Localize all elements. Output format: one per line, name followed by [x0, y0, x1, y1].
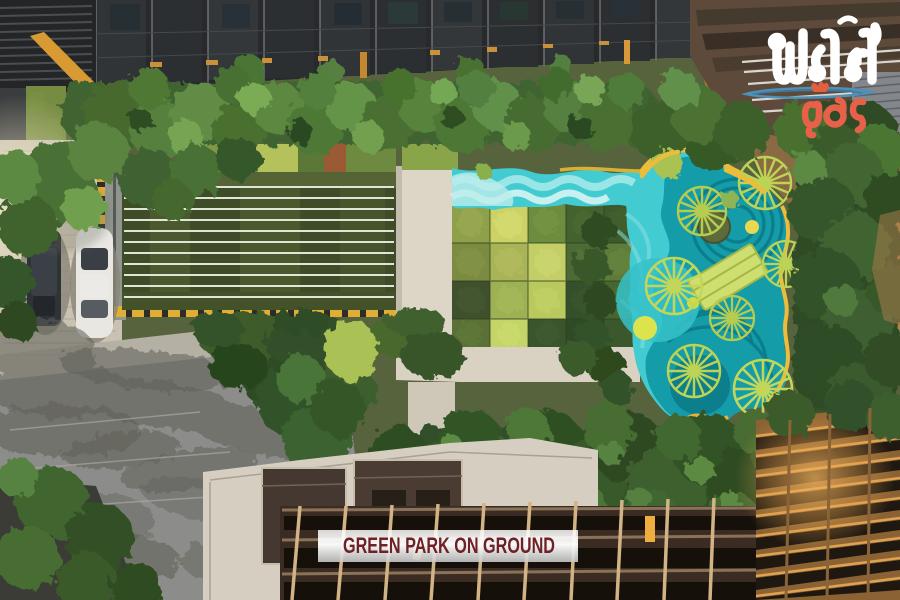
svg-text:GREEN PARK ON GROUND: GREEN PARK ON GROUND [343, 533, 555, 558]
